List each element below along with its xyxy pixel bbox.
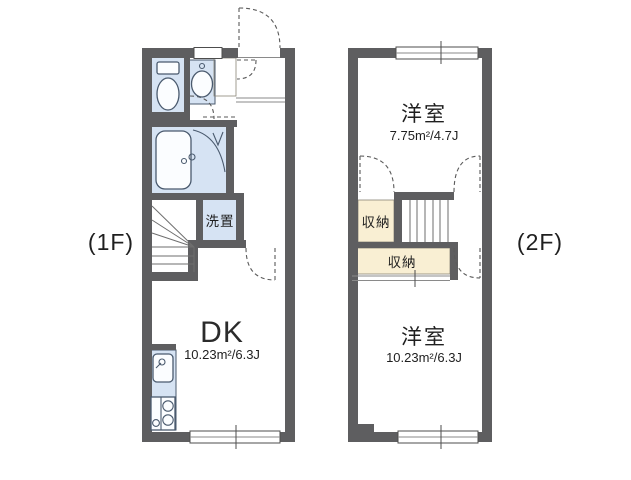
stairs-1f [152, 206, 194, 272]
floor-1-plan: 洗置 DK 10.23m²/6.3J [142, 8, 295, 449]
bedroom-lower-label: 洋室 [401, 326, 447, 349]
kitchen-sink [153, 354, 173, 382]
closet-upper-door-arc [360, 156, 394, 192]
dk-room-label: DK [200, 316, 244, 349]
stairs-2f [410, 200, 448, 242]
dk-door-arc [246, 248, 275, 280]
bathtub-fixture [156, 131, 191, 189]
genkan-door-arc [237, 60, 256, 79]
floor-2-caption: (2F) [517, 229, 563, 255]
shoe-cabinet [214, 58, 236, 96]
floorplan-page: 洗置 DK 10.23m²/6.3J [0, 0, 631, 480]
bedroom-upper-door-arc [454, 156, 480, 192]
closet-lower-label: 収納 [388, 255, 417, 270]
floor-2-plan: 洋室 7.75m²/4.7J 収納 収納 洋室 10.23m²/6.3J [348, 41, 492, 449]
laundry-label: 洗置 [206, 214, 235, 229]
floorplan-drawing: 洗置 DK 10.23m²/6.3J [0, 0, 631, 480]
bedroom-upper-label: 洋室 [401, 103, 447, 126]
bedroom-upper-area: 7.75m²/4.7J [390, 128, 459, 143]
dk-room-area: 10.23m²/6.3J [184, 347, 260, 362]
bedroom-lower-area: 10.23m²/6.3J [386, 350, 462, 365]
stove-burners [151, 397, 175, 430]
washroom-window [194, 48, 222, 59]
toilet-fixture [157, 62, 179, 110]
floor-1-caption: (1F) [88, 229, 134, 255]
closet-upper-label: 収納 [362, 215, 391, 230]
entrance-door-arc [239, 8, 280, 48]
